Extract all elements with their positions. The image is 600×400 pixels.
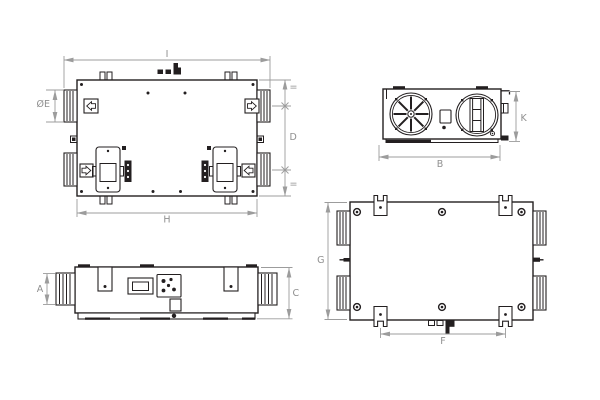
front-view: A C xyxy=(37,264,300,320)
duct-spigot-bottom xyxy=(337,211,350,245)
hanging-bracket xyxy=(98,267,112,291)
junction-square xyxy=(122,146,126,150)
dimension-end-height: K xyxy=(503,92,528,142)
dim-label-total-length: I xyxy=(166,49,169,60)
dimension-end-width: B xyxy=(379,145,500,170)
duct-spigot-right-bottom xyxy=(257,153,270,186)
terminal-strip xyxy=(202,161,209,183)
mounting-bracket xyxy=(374,196,387,216)
dim-label-bracket-spacing: F xyxy=(440,336,445,347)
dim-label-equal-top: = xyxy=(290,82,298,93)
airflow-arrow-icon xyxy=(80,164,93,177)
duct-spigot-front-left xyxy=(56,273,75,305)
power-connector xyxy=(501,136,509,141)
cable-gland-icons xyxy=(429,321,455,335)
junction-square xyxy=(207,146,211,150)
latch-left xyxy=(71,136,78,143)
mounting-bracket xyxy=(499,307,512,327)
fan-impeller xyxy=(390,93,432,135)
dim-label-port-spacing: D xyxy=(290,132,297,143)
airflow-arrow-icon xyxy=(245,99,259,113)
technical-drawing: I ØE = D = H xyxy=(0,0,600,400)
duct-spigot-left-top xyxy=(64,90,77,122)
wall-bracket-clip xyxy=(501,91,510,113)
dim-label-equal-bottom: = xyxy=(290,179,298,190)
base-rail xyxy=(78,313,255,320)
duct-spigot-front-right xyxy=(258,273,277,305)
duct-spigot-bottom xyxy=(533,276,546,310)
drawing-sheet: I ØE = D = H xyxy=(0,0,600,400)
dim-label-total-height: C xyxy=(293,288,300,299)
bottom-view: G F xyxy=(317,196,546,348)
connector-panel xyxy=(157,275,181,298)
dim-label-end-height: K xyxy=(521,113,528,124)
dimension-bracket-spacing: F xyxy=(381,328,506,347)
mounting-bracket xyxy=(499,196,512,216)
motor-end xyxy=(456,94,498,136)
drain-plug xyxy=(172,314,176,318)
duct-spigot-left-bottom xyxy=(64,153,77,186)
unit-body-bottom xyxy=(350,202,533,320)
terminal-strip xyxy=(125,161,132,183)
dim-label-depth: G xyxy=(317,255,324,266)
airflow-arrow-icon xyxy=(242,164,255,177)
dim-label-body-length: H xyxy=(163,215,170,226)
dimension-spigot-diameter: ØE xyxy=(37,90,63,122)
duct-spigot-bottom xyxy=(337,276,350,310)
mounting-bracket xyxy=(374,307,387,327)
top-view: I ØE = D = H xyxy=(37,49,298,226)
latch-right xyxy=(257,136,264,143)
dim-label-end-width: B xyxy=(437,159,444,170)
dim-label-spigot-height: A xyxy=(37,284,44,295)
cable-gland-icons xyxy=(158,63,182,75)
end-view: B K xyxy=(379,86,528,170)
duct-spigot-bottom xyxy=(533,211,546,245)
dimension-spigot-height: A xyxy=(37,274,55,305)
display-panel xyxy=(128,278,153,294)
latch-right xyxy=(533,258,544,262)
hanging-bracket xyxy=(224,267,238,291)
access-cover xyxy=(170,299,181,311)
airflow-arrow-icon xyxy=(84,99,98,113)
screw xyxy=(442,126,446,130)
latch-left xyxy=(340,258,351,262)
dim-label-spigot-diameter: ØE xyxy=(37,99,50,110)
